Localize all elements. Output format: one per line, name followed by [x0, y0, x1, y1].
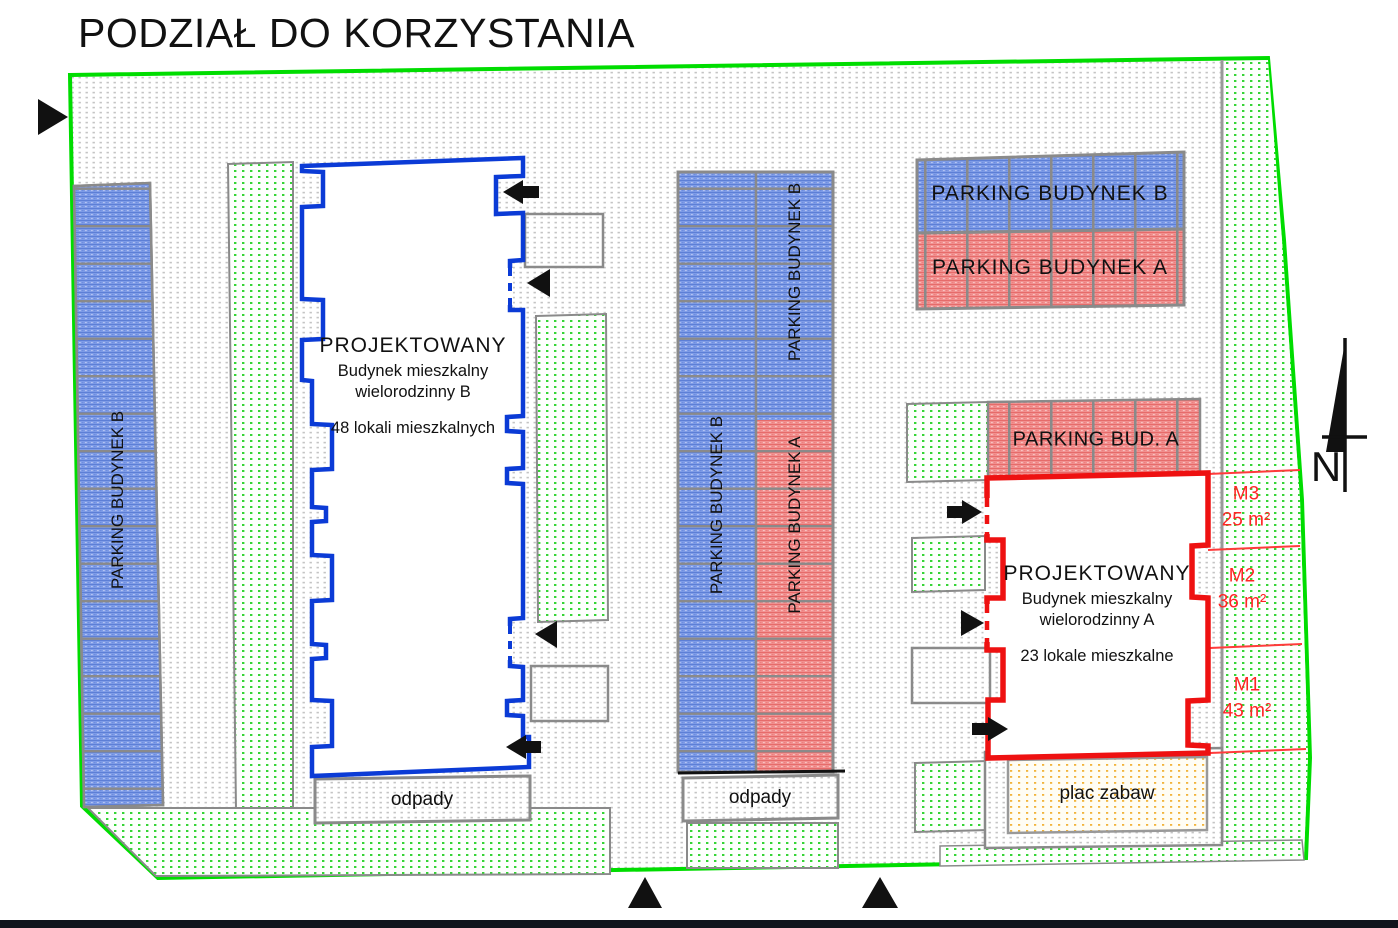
unit-m2-label: M2 36 m²	[1218, 563, 1267, 614]
unit-m1-name: M1	[1223, 672, 1272, 698]
unit-m1-label: M1 43 m²	[1223, 672, 1272, 723]
unit-m2-area: 36 m²	[1218, 589, 1267, 615]
building-a-line1: PROJEKTOWANY	[1003, 562, 1190, 586]
building-b-outline	[302, 158, 529, 776]
parking-middle-right-bottom-label: PARKING BUDYNEK A	[785, 436, 805, 613]
unit-m3-area: 25 m²	[1222, 507, 1271, 533]
building-a-line2: Budynek mieszkalny	[1003, 589, 1190, 610]
green-strip-right	[1222, 60, 1308, 856]
parking-bud-a-label: PARKING BUD. A	[1013, 429, 1180, 452]
page-title: PODZIAŁ DO KORZYSTANIA	[78, 10, 635, 57]
building-b-line2: Budynek mieszkalny	[319, 361, 506, 382]
green-block-a2	[912, 536, 985, 592]
odpady-label-2: odpady	[729, 787, 791, 809]
unit-m3-label: M3 25 m²	[1222, 481, 1271, 532]
site-entrance-triangle-south-2	[862, 877, 898, 908]
site-plan: PODZIAŁ DO KORZYSTANIA PARKING BUDYNEK B…	[0, 0, 1398, 928]
site-plan-drawing	[0, 0, 1398, 928]
building-a-label: PROJEKTOWANY Budynek mieszkalny wielorod…	[1003, 562, 1190, 666]
bottom-bar	[0, 920, 1398, 928]
building-b-line1: PROJEKTOWANY	[319, 334, 506, 358]
plac-zabaw-label: plac zabaw	[1059, 783, 1154, 805]
green-block-a3	[915, 761, 988, 832]
green-band-bottom-middle	[687, 823, 838, 868]
paved-pad-top	[525, 214, 603, 267]
unit-m1-area: 43 m²	[1223, 698, 1272, 724]
north-label: N	[1311, 443, 1341, 491]
paved-pad-a	[912, 648, 990, 703]
unit-m3-name: M3	[1222, 481, 1271, 507]
odpady-label-1: odpady	[391, 789, 453, 811]
building-a-line3: wielorodzinny A	[1003, 610, 1190, 631]
green-block-a1	[907, 402, 988, 482]
parking-block-top-right	[917, 152, 1184, 309]
paved-pad-bottom	[531, 666, 608, 721]
parking-strip-middle	[678, 172, 845, 773]
unit-m2-name: M2	[1218, 563, 1267, 589]
building-b-label: PROJEKTOWANY Budynek mieszkalny wielorod…	[319, 334, 506, 438]
parking-topright-row-b-label: PARKING BUDYNEK B	[931, 182, 1168, 206]
green-strip-left	[228, 162, 293, 810]
parking-topright-row-a-label: PARKING BUDYNEK A	[932, 256, 1168, 280]
green-strip-beside-building-b	[536, 314, 608, 622]
building-a-line4: 23 lokale mieszkalne	[1003, 647, 1190, 666]
parking-left-label: PARKING BUDYNEK B	[108, 411, 128, 589]
parking-middle-right-top-label: PARKING BUDYNEK B	[785, 183, 805, 361]
parking-middle-left-label: PARKING BUDYNEK B	[707, 416, 727, 594]
building-b-line3: wielorodzinny B	[319, 382, 506, 403]
site-entrance-triangle-south-1	[628, 877, 662, 908]
building-b-line4: 48 lokali mieszkalnych	[319, 419, 506, 438]
site-entrance-triangle-west	[38, 99, 68, 135]
